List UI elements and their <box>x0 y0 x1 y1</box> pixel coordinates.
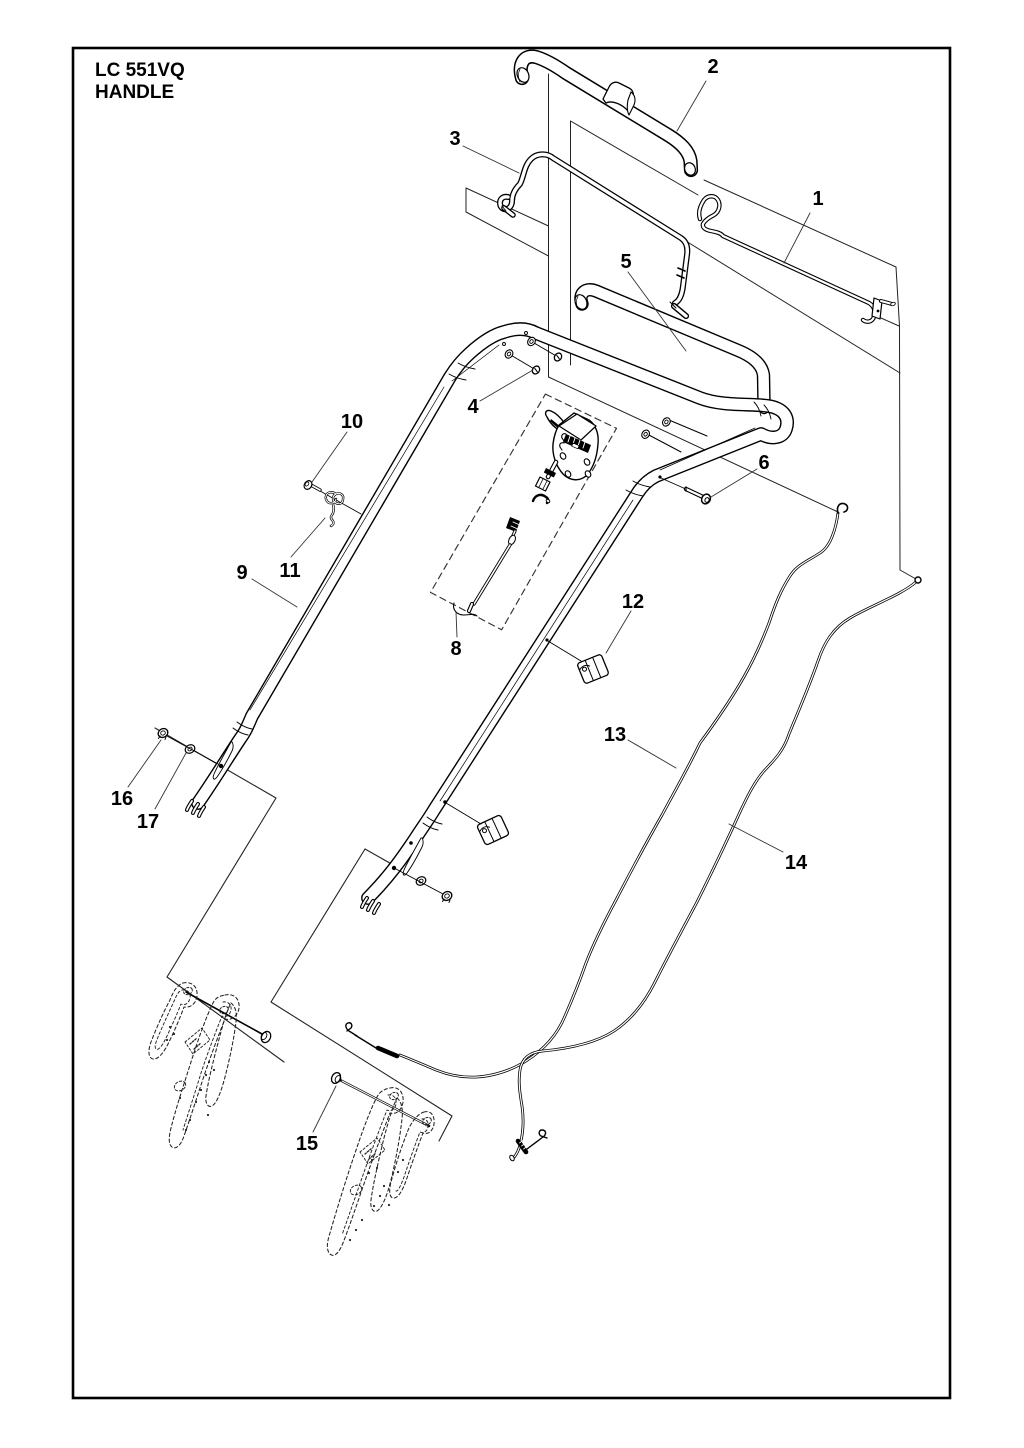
svg-text:15: 15 <box>296 1133 318 1155</box>
svg-text:16: 16 <box>111 788 133 810</box>
svg-text:2: 2 <box>707 56 718 78</box>
svg-text:13: 13 <box>604 724 626 746</box>
svg-text:8: 8 <box>450 638 461 660</box>
svg-text:9: 9 <box>236 562 247 584</box>
svg-text:14: 14 <box>785 852 808 874</box>
svg-text:LC 551VQ: LC 551VQ <box>95 60 185 81</box>
svg-text:12: 12 <box>622 591 644 613</box>
svg-text:17: 17 <box>137 811 159 833</box>
svg-text:5: 5 <box>620 251 631 273</box>
svg-text:HANDLE: HANDLE <box>95 82 174 103</box>
svg-text:10: 10 <box>341 411 363 433</box>
svg-text:4: 4 <box>467 396 479 418</box>
svg-text:1: 1 <box>812 188 823 210</box>
svg-text:6: 6 <box>758 452 769 474</box>
svg-text:11: 11 <box>279 560 300 582</box>
svg-text:3: 3 <box>449 128 460 150</box>
